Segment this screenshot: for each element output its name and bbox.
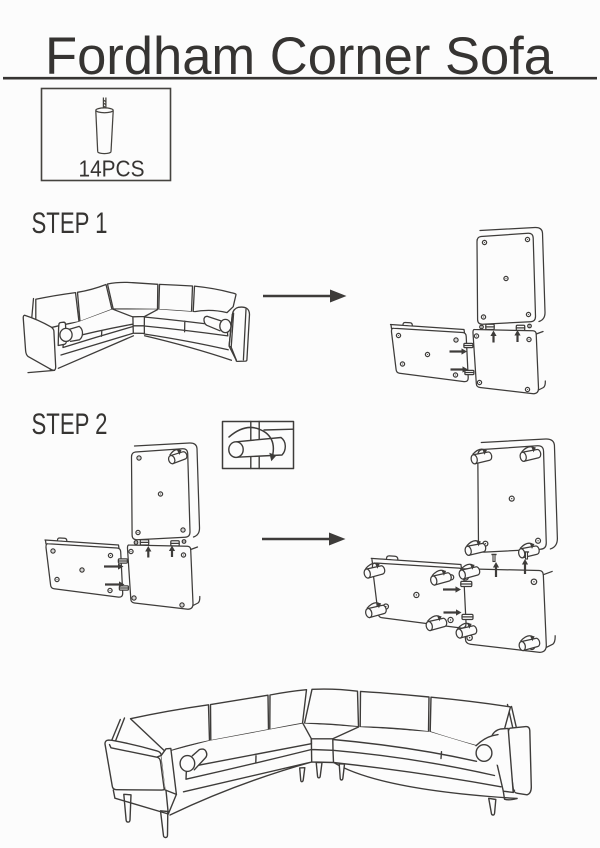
svg-text:14PCS: 14PCS (79, 156, 145, 182)
svg-text:STEP 2: STEP 2 (32, 408, 108, 441)
svg-text:STEP 1: STEP 1 (32, 207, 108, 240)
